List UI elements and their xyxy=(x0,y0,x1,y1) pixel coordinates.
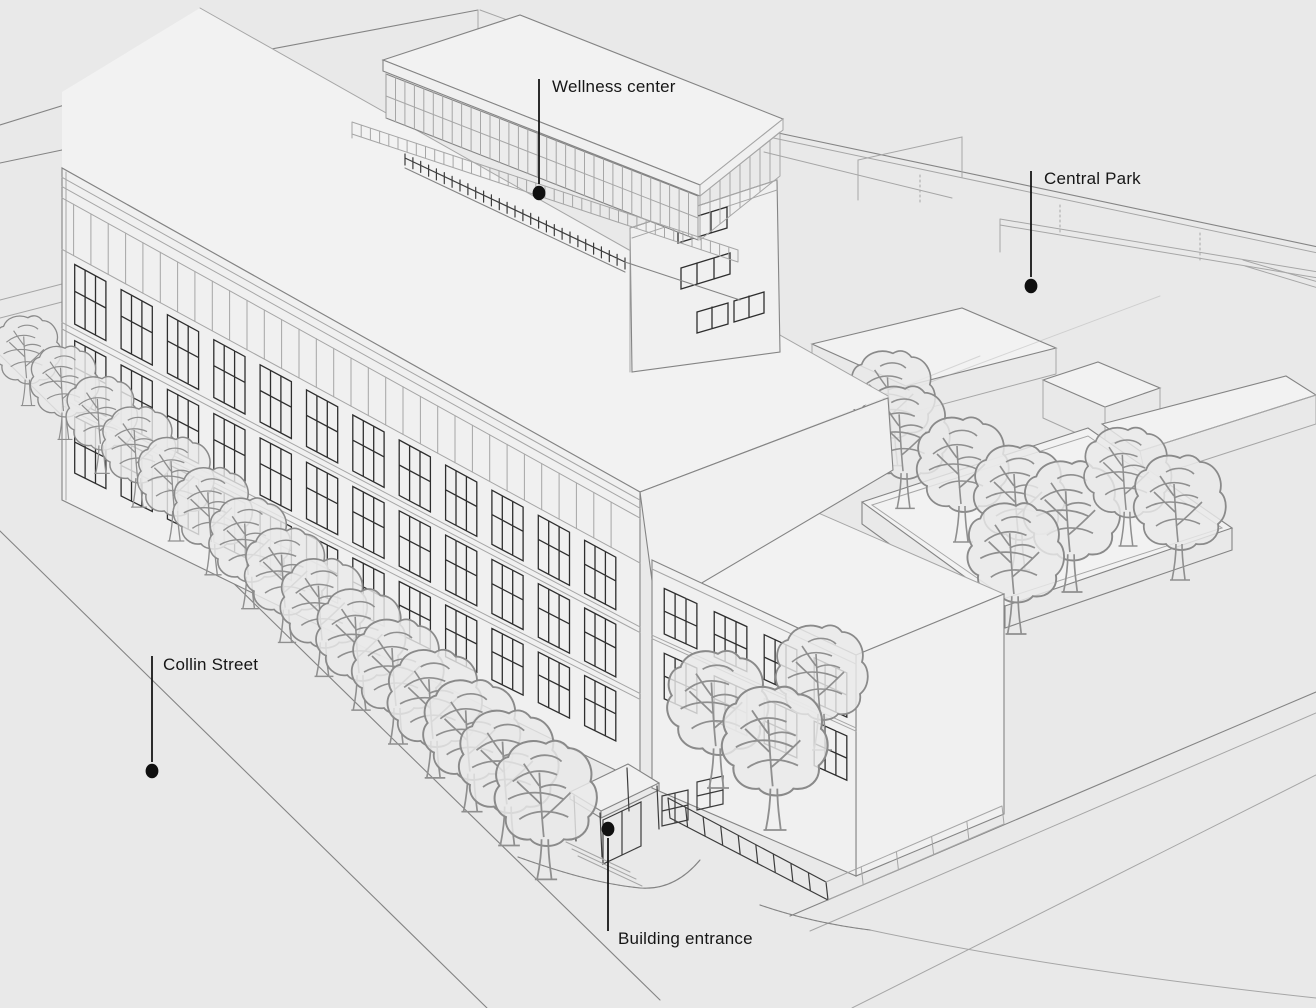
annotation-collin-street: Collin Street xyxy=(146,655,259,778)
marker-dot xyxy=(146,764,159,778)
annotation-label: Wellness center xyxy=(552,77,676,96)
marker-dot xyxy=(602,822,615,836)
architectural-sketch: Wellness centerCentral ParkCollin Street… xyxy=(0,0,1316,1008)
illustration-stage: Wellness centerCentral ParkCollin Street… xyxy=(0,0,1316,1008)
marker-dot xyxy=(533,186,546,200)
marker-dot xyxy=(1025,279,1038,293)
annotation-building-entrance: Building entrance xyxy=(602,822,753,948)
annotation-label: Building entrance xyxy=(618,929,753,948)
annotation-label: Collin Street xyxy=(163,655,258,674)
annotation-label: Central Park xyxy=(1044,169,1141,188)
annotation-central-park: Central Park xyxy=(1025,169,1142,293)
